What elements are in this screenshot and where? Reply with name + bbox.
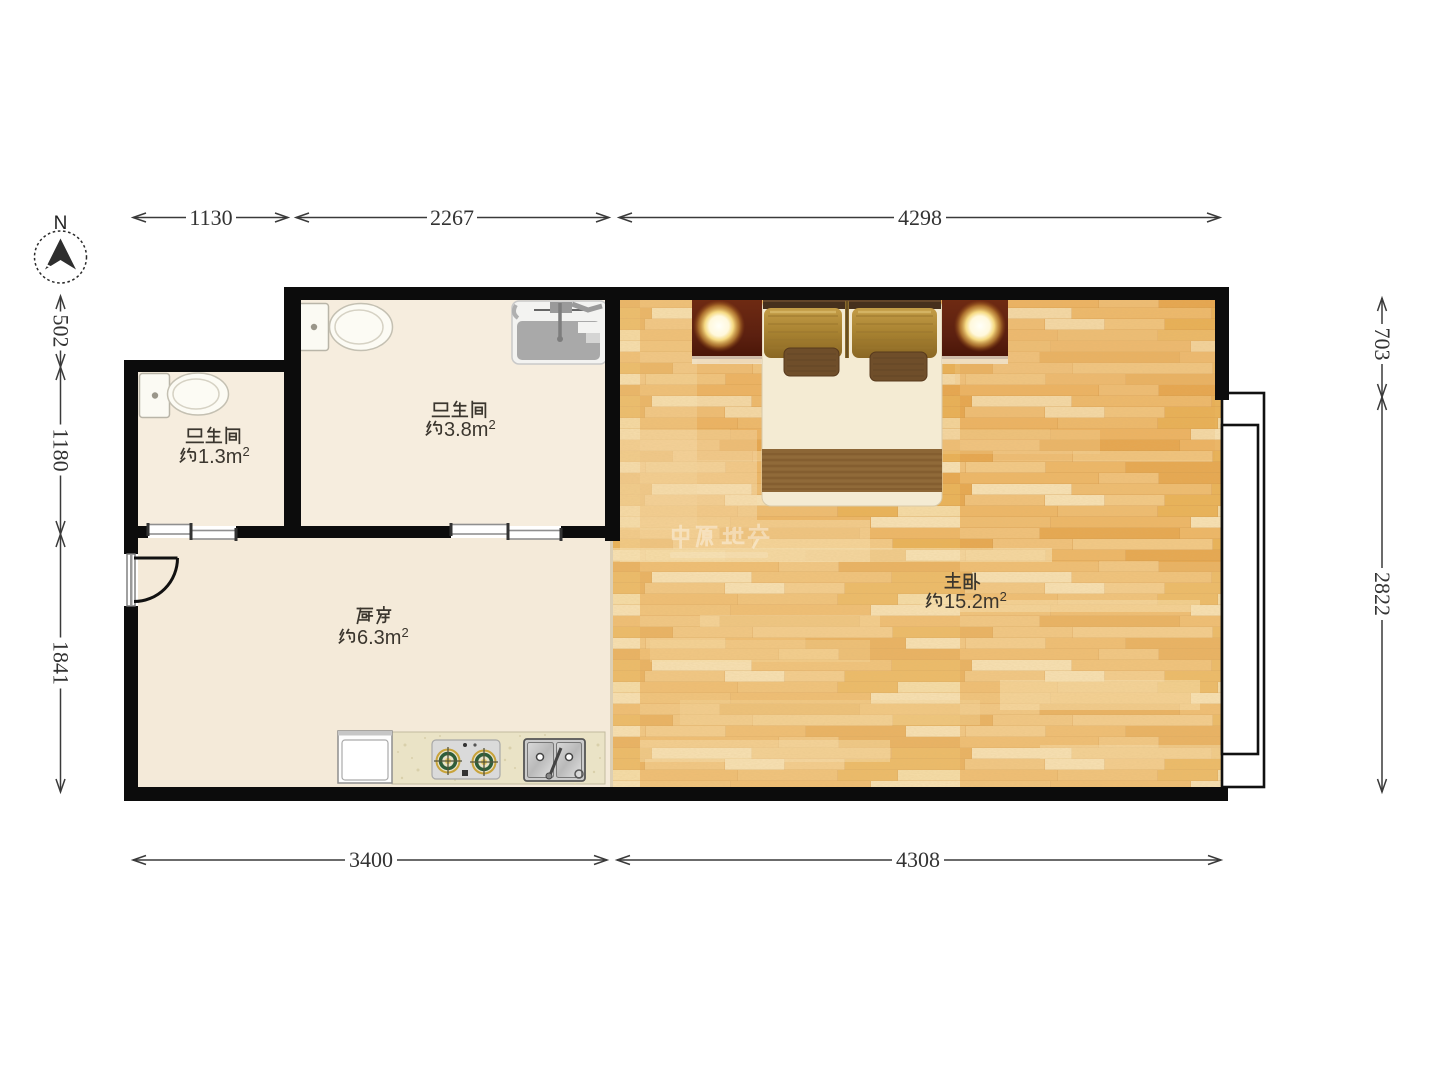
svg-text:1180: 1180 <box>49 428 74 471</box>
svg-text:4298: 4298 <box>898 205 942 230</box>
svg-text:3.8m2: 3.8m2 <box>444 417 496 441</box>
svg-text:1841: 1841 <box>49 641 74 685</box>
svg-text:3400: 3400 <box>349 847 393 872</box>
svg-text:4308: 4308 <box>896 847 940 872</box>
svg-text:703: 703 <box>1370 328 1395 361</box>
svg-text:2822: 2822 <box>1370 572 1395 616</box>
svg-text:2267: 2267 <box>430 205 474 230</box>
svg-text:1.3m2: 1.3m2 <box>198 444 250 468</box>
svg-text:1130: 1130 <box>189 205 232 230</box>
svg-text:15.2m2: 15.2m2 <box>944 589 1007 613</box>
svg-text:6.3m2: 6.3m2 <box>357 625 409 649</box>
svg-text:502: 502 <box>49 315 74 348</box>
svg-text:N: N <box>54 213 68 234</box>
